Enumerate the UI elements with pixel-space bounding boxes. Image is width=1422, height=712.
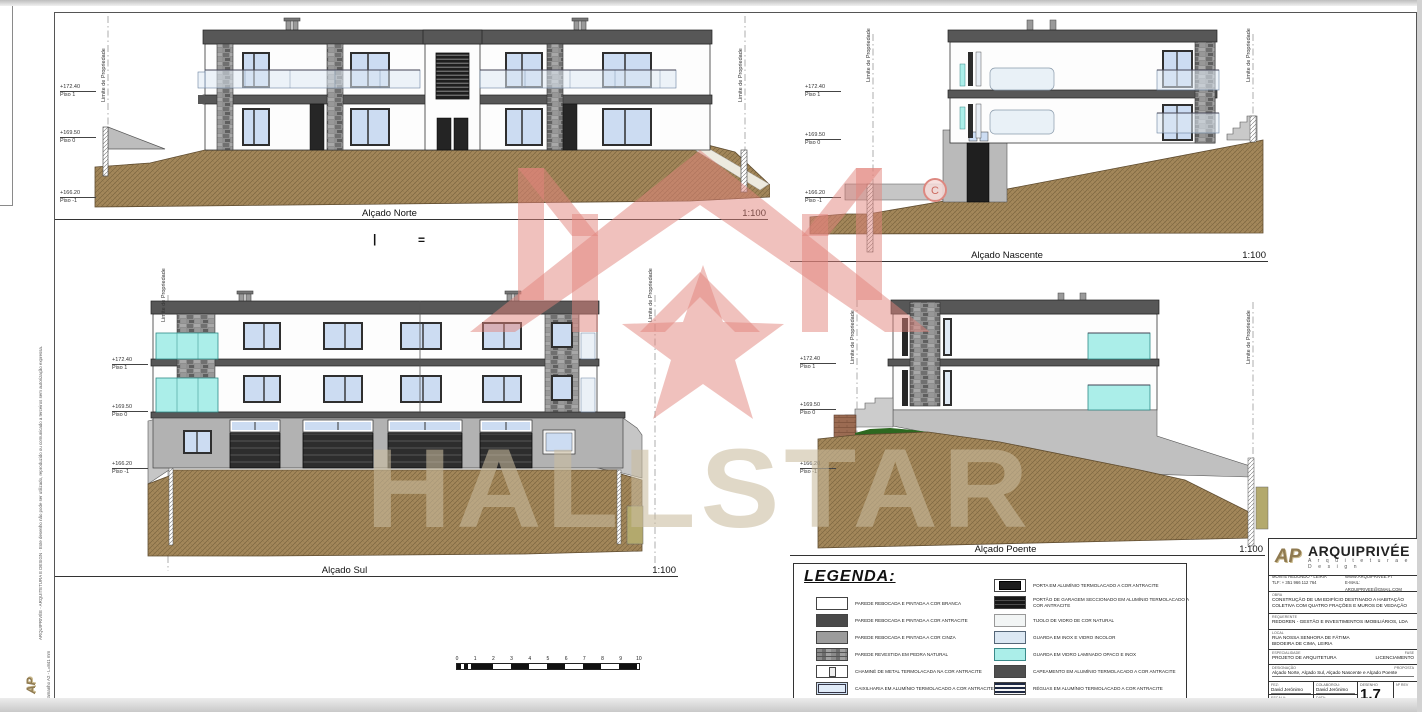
swatch-parede-cinza [816,631,848,644]
legend-item: CAPEAMENTO EM ALUMÍNIO TERMOLACADO A COR… [994,665,1191,678]
legend-item: PAREDE REVESTIDA EM PEDRA NATURAL [816,648,1013,661]
firm-subtitle: A r q u i t e t u r a e D e s i g n [1308,558,1414,570]
scale-bar-segments [456,663,640,670]
swatch-guarda-vidro [994,648,1026,661]
swatch-porta-icon [994,579,1026,592]
norte-scale: 1:100 [724,208,768,219]
sul-scale: 1:100 [634,565,678,576]
level-marker: +169.50Piso 0 [800,402,836,417]
poente-caption-row: Alçado Poente 1:100 [790,540,1265,556]
level-marker: +172.40Piso 1 [805,84,841,99]
norte-title: Alçado Norte [55,208,724,219]
swatch-chamine-icon [816,665,848,678]
firm-name: ARQUIPRIVÉE [1308,543,1410,559]
property-line-label: Limite de Propriedade [161,244,167,322]
legend-item: PORTA EM ALUMÍNIO TERMOLACADO A COR ANTR… [994,579,1191,592]
requerente-row: REQUERENTE REDGREN - GESTÃO E INVESTIMEN… [1269,613,1417,629]
norte-caption-row: Alçado Norte 1:100 [55,204,768,220]
fase-value: LICENCIAMENTO [1376,655,1414,661]
obra-row: OBRA CONSTRUÇÃO DE UM EDIFÍCIO DESTINADO… [1269,591,1417,613]
swatch-tijolo-vidro [994,614,1026,627]
poente-title: Alçado Poente [790,544,1221,555]
property-line-label: Limite de Propriedade [738,24,744,102]
legend-item: PORTÃO DE GARAGEM SECCIONADO EM ALUMÍNIO… [994,596,1191,609]
registration-line [12,0,13,206]
level-marker: +169.50Piso 0 [60,130,96,145]
legend-item: CAIXILHARIA EM ALUMÍNIO TERMOLACADO A CO… [816,682,1013,695]
level-marker: +166.20Piso -1 [805,190,841,205]
scan-edge-top [0,0,1422,6]
swatch-guarda-inox [994,631,1026,644]
swatch-capeamento [994,665,1026,678]
sul-title: Alçado Sul [55,565,634,576]
swatch-pedra-natural [816,648,848,661]
level-marker: +166.20Piso -1 [800,461,836,476]
legend-item: PAREDE REBOCADA E PINTADA A COR ANTRACIT… [816,614,1013,627]
fez-cell: FEZ: David Jerónimo [1269,682,1313,694]
mark-equals: = [418,233,425,247]
firm-contact: MONTE REDONDO - LEIRIA TLF: + 351 966 11… [1269,575,1417,591]
level-marker: +172.40Piso 1 [112,357,148,372]
legend-item: GUARDA EM VIDRO LAMINADO OPACO E INOX [994,648,1191,661]
margin-disclaimer: ARQUIPRIVÉE - ARQUITETURA E DESIGN · Est… [38,346,43,640]
legend-box: LEGENDA: PAREDE REBOCADA E PINTADA A COR… [793,563,1187,702]
level-marker: +166.20Piso -1 [60,190,96,205]
nascente-caption-row: Alçado Nascente 1:100 [790,246,1268,262]
firm-website: WWW.ARQUIPRIVEE.PT [1345,574,1393,579]
swatch-parede-antracite [816,614,848,627]
title-block: AP ARQUIPRIVÉE A r q u i t e t u r a e D… [1268,538,1418,707]
level-marker: +169.50Piso 0 [805,132,841,147]
legend-item: GUARDA EM INOX E VIDRO INCOLOR [994,631,1191,644]
arquiprivee-logo: AP [1272,546,1304,568]
legend-title: LEGENDA: [804,568,896,586]
drawing-sheet: C [0,0,1422,712]
legend-item: TIJOLO DE VIDRO DE COR NATURAL [994,614,1191,627]
legend-item: PAREDE REBOCADA E PINTADA A COR CINZA [816,631,1013,644]
property-line-label: Limite de Propriedade [101,24,107,102]
property-line-label: Limite de Propriedade [850,286,856,364]
designacao-value: Alçado Norte, Alçado Sul, Alçado Nascent… [1272,670,1414,677]
local-line2: BIDOEIRA DE CIMA, LEIRIA [1272,641,1414,647]
colaborou-cell: COLABOROU: David Jerónimo [1313,682,1357,694]
swatch-parede-branca [816,597,848,610]
legend-item: CHAMINÉ DE METAL TERMOLACADA NA COR ANTR… [816,665,1013,678]
obra-value: CONSTRUÇÃO DE UM EDIFÍCIO DESTINADO A HA… [1272,597,1414,609]
property-line-label: Limite de Propriedade [648,244,654,322]
scale-bar-ticks: 012345678910 [454,656,642,662]
especialidade-row: ESPECIALIDADE FASE PROJETO DE ARQUITETUR… [1269,649,1417,664]
scan-edge-right [1417,0,1422,712]
mark-bar: | [373,232,376,246]
margin-ap-logo: AP [24,677,38,694]
legend-item: PAREDE REBOCADA E PINTADA A COR BRANCA [816,597,1013,610]
sheet-border [54,12,1417,707]
property-line-label: Limite de Propriedade [866,4,872,82]
firm-phone: TLF: + 351 966 112 764 [1272,580,1317,585]
designacao-row: DESIGNAÇÃO PROPOSTA Alçado Norte, Alçado… [1269,664,1417,681]
fez-value: David Jerónimo [1271,687,1311,694]
level-marker: +169.50Piso 0 [112,404,148,419]
swatch-reguas [994,682,1026,695]
scan-edge-bottom [0,698,1422,712]
nascente-title: Alçado Nascente [790,250,1224,261]
level-marker: +172.40Piso 1 [60,84,96,99]
nascente-scale: 1:100 [1224,250,1268,261]
poente-scale: 1:100 [1221,544,1265,555]
legend-item: RÉGUAS EM ALUMÍNIO TERMOLACADO A COR ANT… [994,682,1191,695]
level-marker: +172.40Piso 1 [800,356,836,371]
sul-caption-row: Alçado Sul 1:100 [55,561,678,577]
firm-email: E-MAIL: ARQUIPRIVEE@GMAIL.COM [1345,580,1402,591]
registration-tick [0,205,12,206]
firm-header: AP ARQUIPRIVÉE A r q u i t e t u r a e D… [1269,539,1417,575]
especialidade-value: PROJETO DE ARQUITETURA [1272,655,1337,661]
graphic-scale-bar: 012345678910 [456,656,640,670]
level-marker: +166.20Piso -1 [112,461,148,476]
firm-address: MONTE REDONDO - LEIRIA [1272,574,1327,579]
requerente-value: REDGREN - GESTÃO E INVESTIMENTOS IMOBILI… [1272,619,1414,625]
colaborou-value: David Jerónimo [1316,687,1355,694]
swatch-caixilharia-icon [816,682,848,695]
swatch-portao-garagem [994,596,1026,609]
property-line-label: Limite de Propriedade [1246,286,1252,364]
local-row: LOCAL RUA NOSSA SENHORA DE FÁTIMA BIDOEI… [1269,629,1417,649]
property-line-label: Limite de Propriedade [1246,4,1252,82]
margin-size-note: Tamanho A2 - L=841 mm [46,651,51,700]
